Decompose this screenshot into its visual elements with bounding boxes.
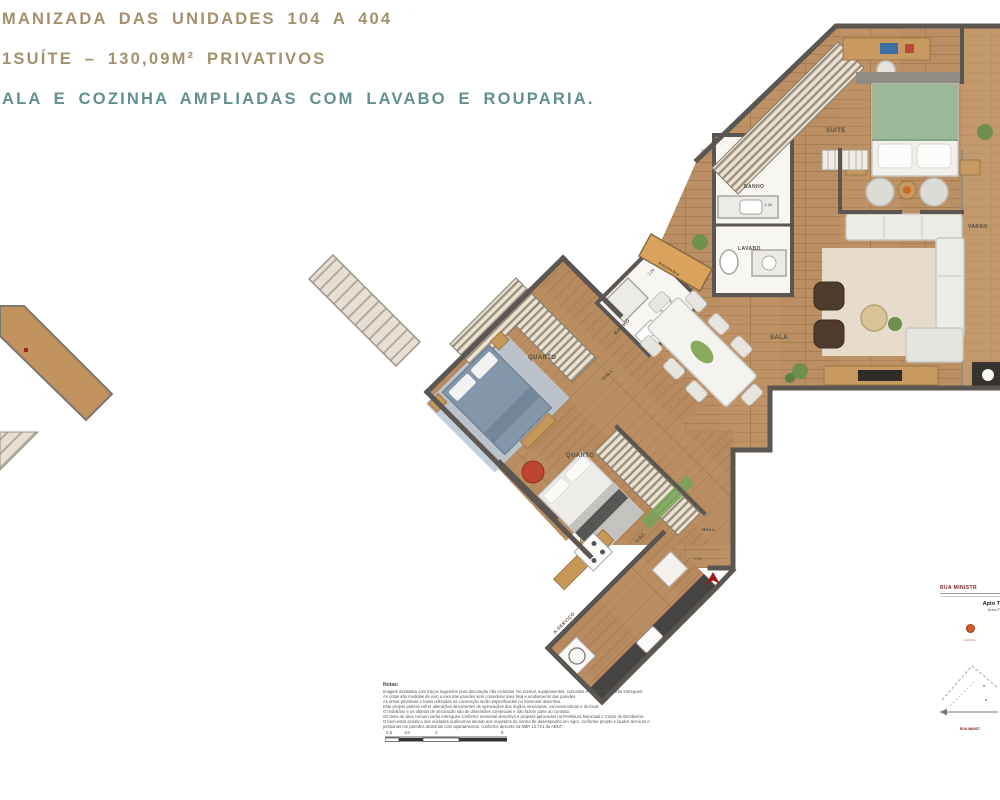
keyplan-area-label: Área P xyxy=(940,607,1000,612)
label-banho-suite: BANHO xyxy=(744,184,764,190)
key-plan: RUA MINISTR Apto T Área P LOCAL RUA MINI… xyxy=(940,585,1000,765)
keyplan-site-outline xyxy=(940,642,1000,720)
keyplan-marker xyxy=(940,620,1000,638)
corridor-marker xyxy=(24,348,28,352)
stairs-fragment xyxy=(0,432,38,470)
label-quarto-2: QUARTO xyxy=(566,453,594,459)
floor-plan: SUITE BANHO LAVABO ROUPARIA BANHO QUARTO… xyxy=(0,0,1000,800)
corridor-fragment xyxy=(0,306,112,420)
dim-1-36: 1,36 xyxy=(764,202,773,207)
label-hall-2: HALL xyxy=(702,527,716,532)
entrance-arrow xyxy=(706,572,720,584)
label-suite: SUITE xyxy=(826,128,846,134)
keyplan-divider xyxy=(940,593,1000,597)
keyplan-street-bottom: RUA MINIST xyxy=(940,727,1000,731)
scale-bar: 0,5 1m 3 5 xyxy=(385,729,515,750)
label-sala: SALA xyxy=(770,335,788,341)
scale-label-1m: 1m xyxy=(404,730,411,735)
label-lavabo: LAVABO xyxy=(738,246,761,252)
notes-title: Notas: xyxy=(383,682,655,688)
scale-label-3: 3 xyxy=(435,730,438,735)
dim-2-70: 2,70 xyxy=(700,148,705,157)
location-dot-icon xyxy=(966,624,975,633)
stairs xyxy=(309,255,420,366)
label-varanda: VARAN xyxy=(968,224,987,230)
dim-1-80: 1,80 xyxy=(694,556,703,561)
keyplan-street-top: RUA MINISTR xyxy=(940,585,1000,591)
legal-notes: Notas: Imagem ilustrativa com traços sug… xyxy=(383,682,655,729)
label-quarto-1: QUARTO xyxy=(528,355,556,361)
page: MANIZADA DAS UNIDADES 104 A 404 1SUÍTE –… xyxy=(0,0,1000,800)
scale-label-5: 5 xyxy=(501,730,504,735)
scale-label-05: 0,5 xyxy=(386,730,393,735)
